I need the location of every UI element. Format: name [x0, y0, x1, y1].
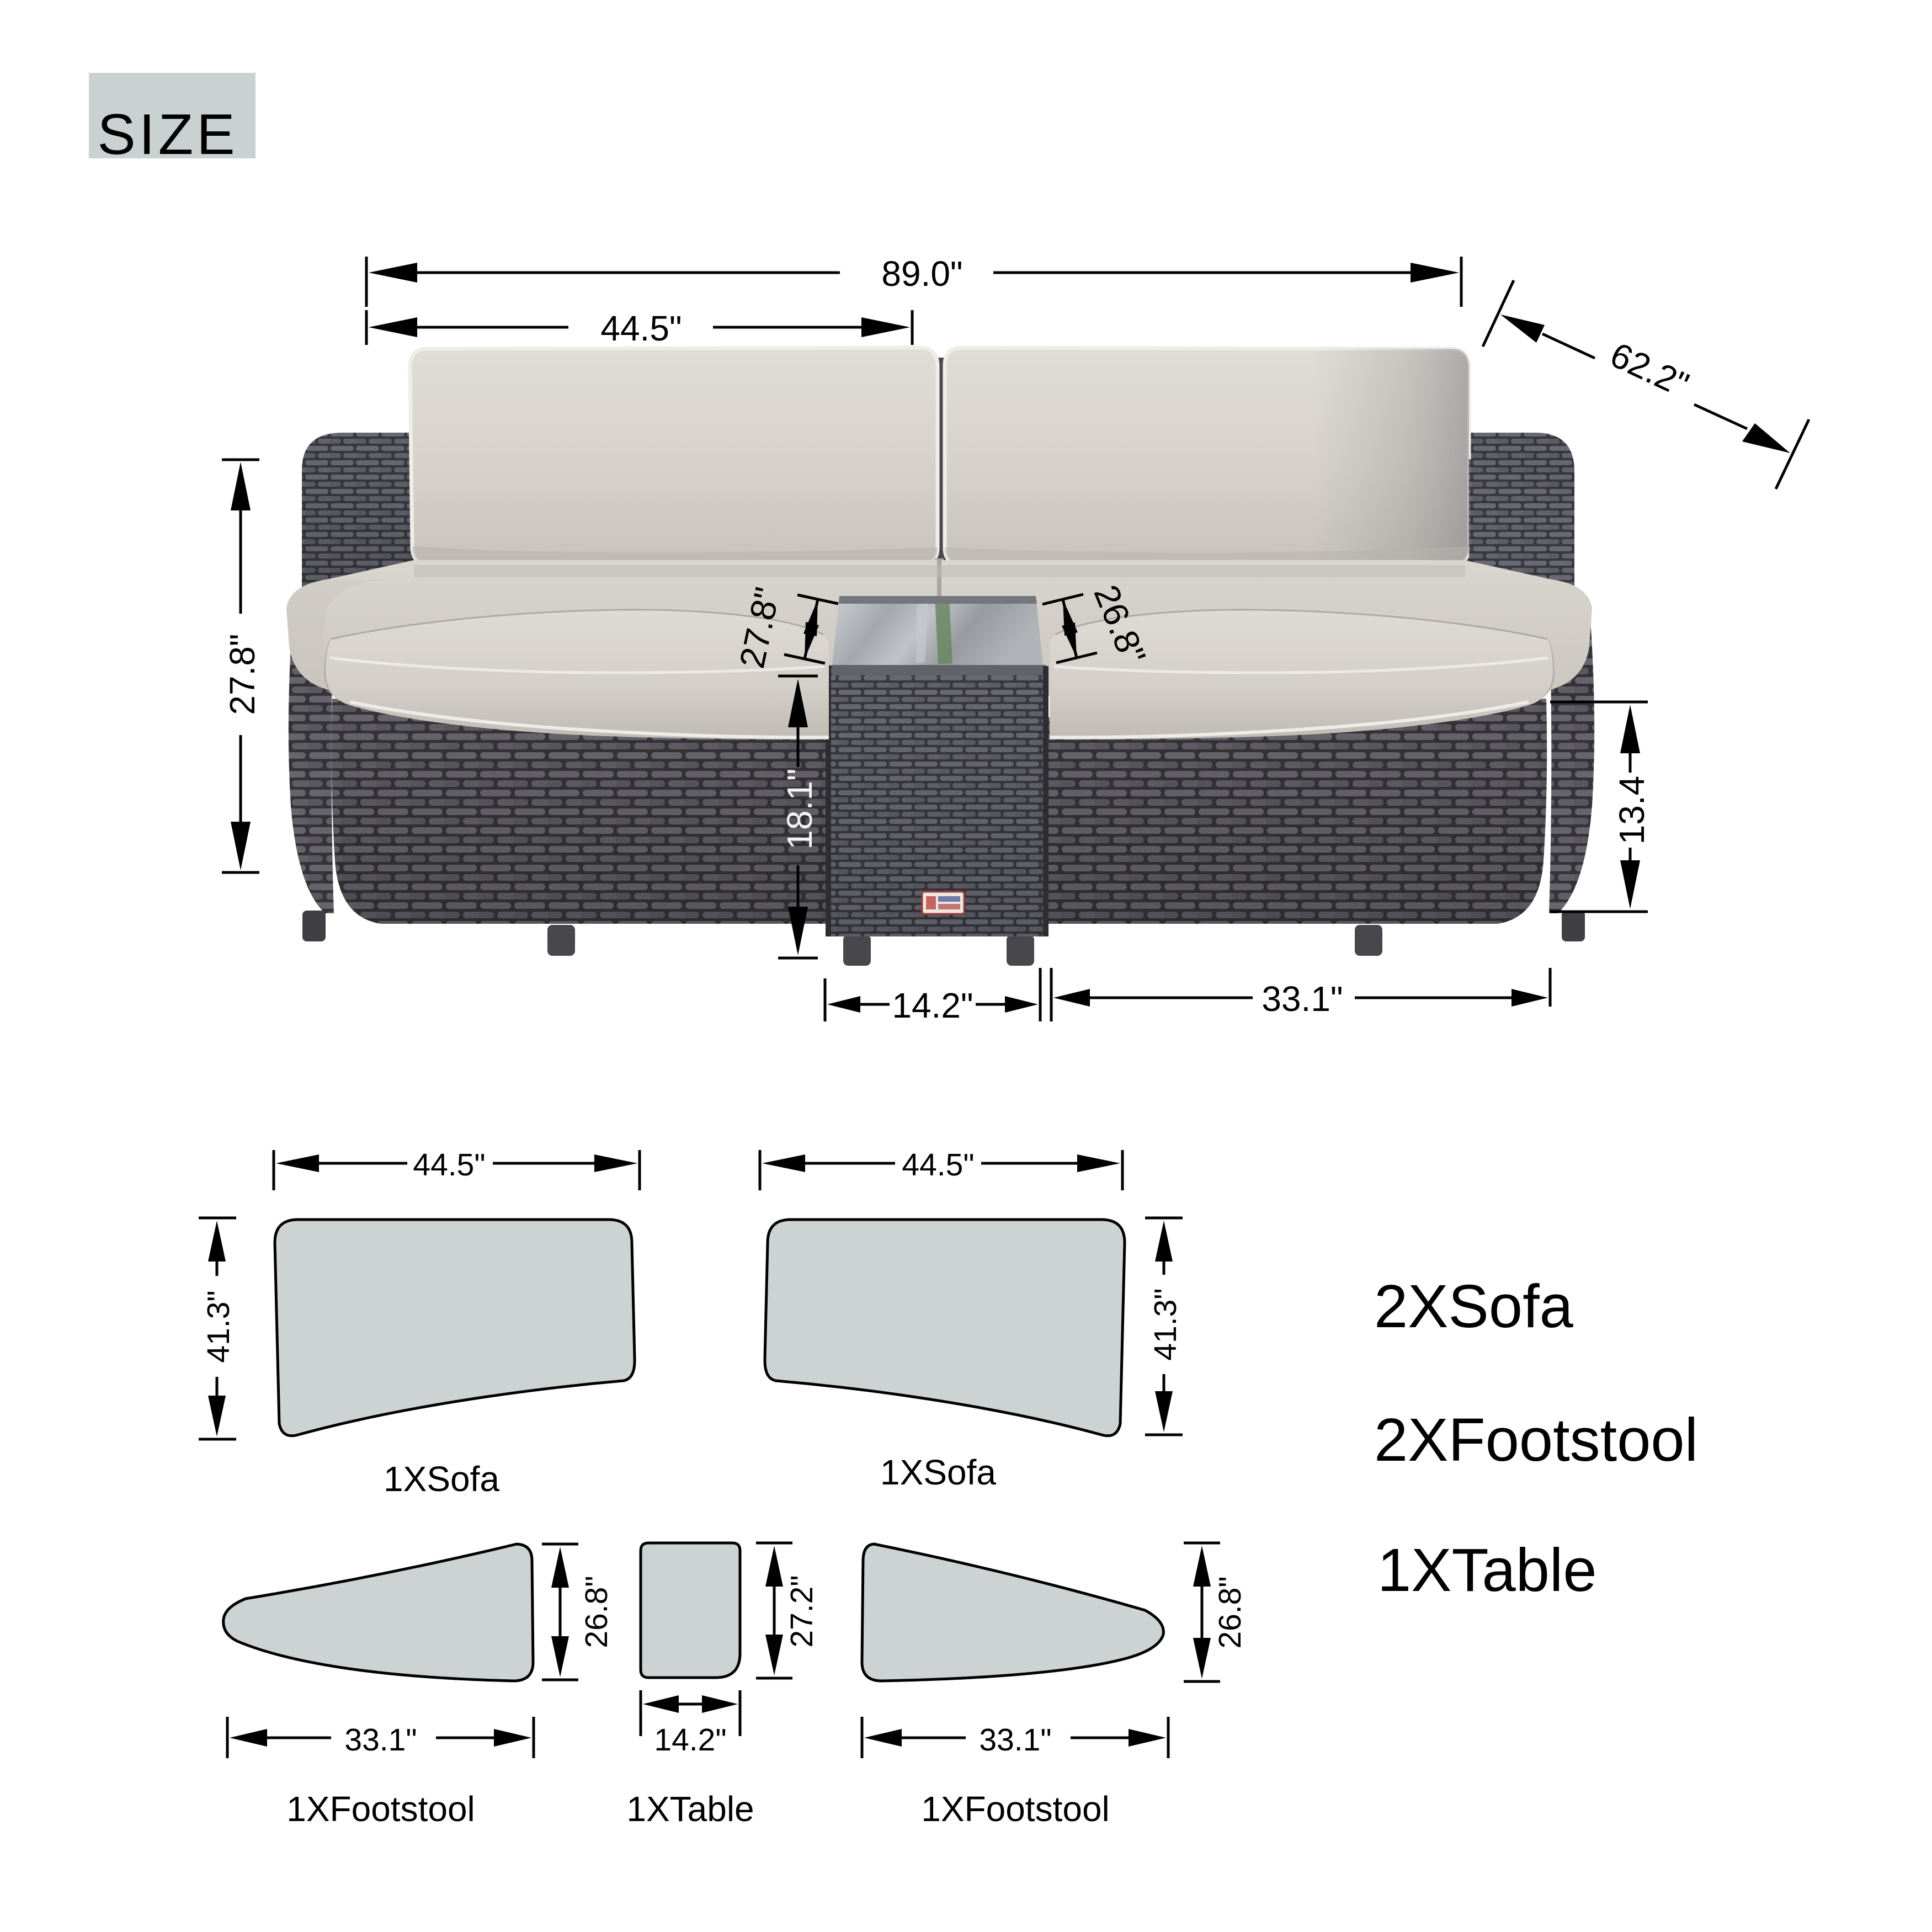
- svg-text:89.0": 89.0": [881, 254, 962, 294]
- svg-text:27.2": 27.2": [784, 1575, 819, 1647]
- svg-text:1XFootstool: 1XFootstool: [921, 1789, 1110, 1829]
- svg-text:SIZE: SIZE: [97, 103, 238, 167]
- svg-text:44.5": 44.5": [413, 1147, 485, 1183]
- svg-text:27.8": 27.8": [222, 634, 262, 715]
- svg-text:33.1": 33.1": [1262, 979, 1343, 1019]
- svg-text:14.2": 14.2": [654, 1722, 726, 1758]
- svg-text:44.5": 44.5": [600, 308, 682, 348]
- svg-text:1XSofa: 1XSofa: [880, 1452, 996, 1492]
- svg-text:1XSofa: 1XSofa: [384, 1459, 499, 1499]
- svg-text:41.3": 41.3": [201, 1290, 236, 1362]
- svg-text:2XSofa: 2XSofa: [1374, 1273, 1574, 1340]
- svg-text:18.1": 18.1": [780, 768, 819, 849]
- svg-text:26.8": 26.8": [579, 1576, 614, 1648]
- svg-text:2XFootstool: 2XFootstool: [1374, 1406, 1698, 1474]
- svg-text:1XTable: 1XTable: [1377, 1536, 1597, 1604]
- svg-text:13.4: 13.4: [1612, 776, 1652, 845]
- svg-text:41.3": 41.3": [1148, 1288, 1183, 1360]
- svg-text:26.8": 26.8": [1212, 1576, 1248, 1648]
- svg-text:14.2": 14.2": [892, 986, 973, 1025]
- svg-text:33.1": 33.1": [979, 1722, 1051, 1758]
- svg-text:44.5": 44.5": [902, 1147, 974, 1183]
- svg-text:33.1": 33.1": [344, 1722, 417, 1758]
- svg-text:1XFootstool: 1XFootstool: [286, 1789, 475, 1829]
- svg-text:1XTable: 1XTable: [626, 1789, 754, 1829]
